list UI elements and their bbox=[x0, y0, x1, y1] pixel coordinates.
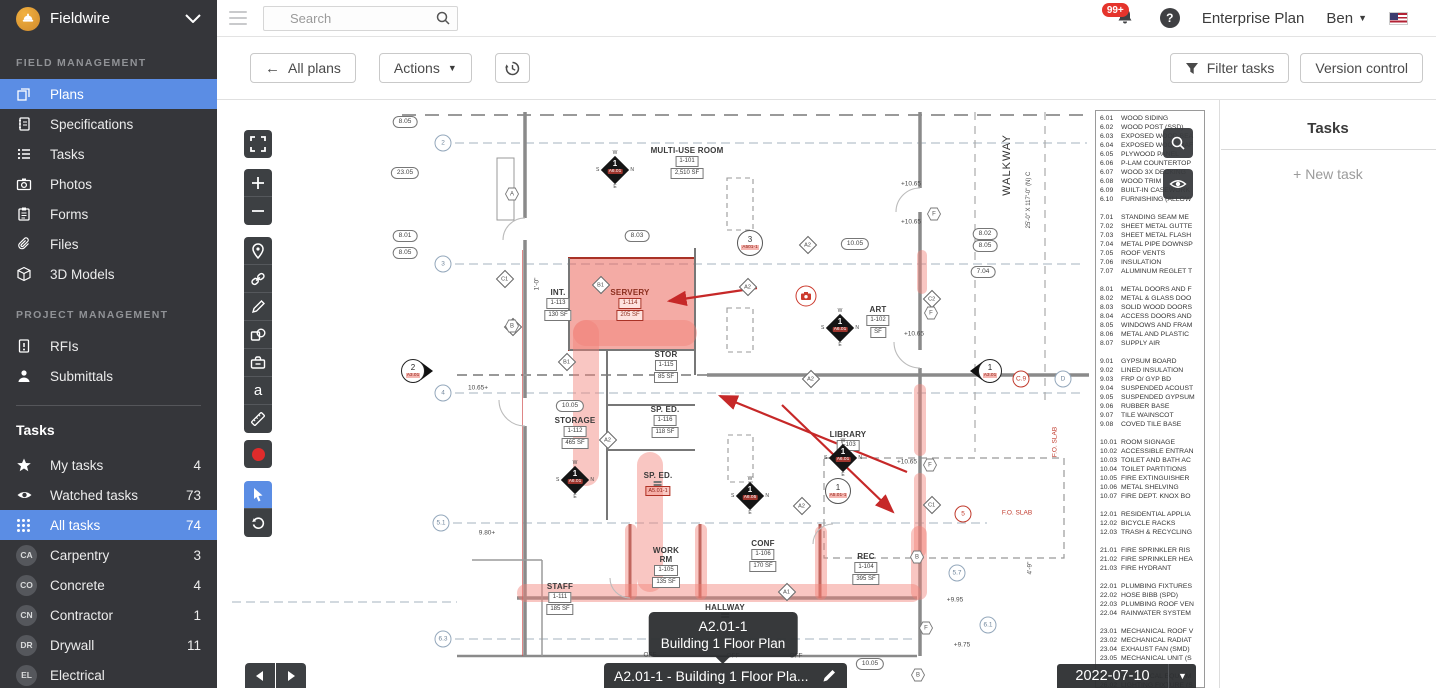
grid-bubble: 5.1 bbox=[433, 515, 450, 532]
shapes-icon bbox=[250, 327, 266, 343]
sidebar-item-label: Submittals bbox=[50, 369, 113, 384]
keynote-line: 8.03SOLID WOOD DOORS bbox=[1100, 303, 1204, 312]
task-category-item[interactable]: CN Contractor 1 bbox=[0, 600, 217, 630]
project-management-heading: PROJECT MANAGEMENT bbox=[0, 289, 217, 331]
task-filter-label: Watched tasks bbox=[50, 488, 138, 503]
sidebar-item[interactable]: Submittals bbox=[0, 361, 217, 391]
item-icon bbox=[16, 143, 40, 165]
keynote-line: 10.02ACCESSIBLE ENTRAN bbox=[1100, 447, 1204, 456]
keynote-line: 10.04TOILET PARTITIONS bbox=[1100, 465, 1204, 474]
plus-icon bbox=[251, 176, 265, 190]
keynote-line: 12.01RESIDENTIAL APPLIA bbox=[1100, 510, 1204, 519]
task-category-item[interactable]: CO Concrete 4 bbox=[0, 570, 217, 600]
task-category-count: 3 bbox=[193, 548, 201, 563]
keynote-line: 23.02MECHANICAL RADIAT bbox=[1100, 636, 1204, 645]
detail-marker: 3A501-1 bbox=[737, 230, 763, 256]
measure-tool-button[interactable] bbox=[244, 405, 272, 433]
task-category-count: 4 bbox=[193, 578, 201, 593]
keynote-bubble: 8.03 bbox=[625, 230, 650, 242]
new-task-button[interactable]: + New task bbox=[1220, 150, 1436, 182]
keynote-line: 12.02BICYCLE RACKS bbox=[1100, 519, 1204, 528]
tasks-heading: Tasks bbox=[0, 406, 217, 450]
keynote-line: 9.08COVED TILE BASE bbox=[1100, 420, 1204, 429]
item-icon bbox=[16, 113, 40, 135]
help-icon[interactable]: ? bbox=[1160, 8, 1180, 28]
room-label-group: REC 1-104 395 SF bbox=[852, 552, 879, 585]
category-badge: DR bbox=[16, 634, 40, 656]
item-icon bbox=[16, 263, 40, 285]
room-label-group: WORK RM 1-105 135 SF bbox=[648, 547, 684, 588]
task-category-item[interactable]: EL Electrical bbox=[0, 660, 217, 688]
search-input[interactable] bbox=[263, 6, 458, 31]
fieldwire-logo-icon bbox=[16, 7, 40, 31]
version-control-button[interactable]: Version control bbox=[1300, 53, 1423, 83]
grid-bubble: C.9 bbox=[1013, 371, 1030, 388]
keynote-bubble: 10.05 bbox=[856, 658, 884, 670]
task-category-label: Carpentry bbox=[50, 548, 109, 563]
rotate-icon bbox=[251, 516, 266, 531]
tasks-panel-title: Tasks bbox=[1220, 100, 1436, 149]
sidebar-item[interactable]: Tasks bbox=[0, 139, 217, 169]
dropdown-caret-icon: ▼ bbox=[448, 63, 457, 73]
task-filter-count: 4 bbox=[193, 458, 201, 473]
filter-tasks-button[interactable]: Filter tasks bbox=[1170, 53, 1290, 83]
keynote-line bbox=[1100, 276, 1204, 285]
item-icon bbox=[16, 83, 40, 105]
category-badge: CN bbox=[16, 604, 40, 626]
sidebar-item[interactable]: Specifications bbox=[0, 109, 217, 139]
item-icon bbox=[16, 454, 40, 476]
toolbox-button[interactable] bbox=[244, 349, 272, 377]
us-flag-icon[interactable] bbox=[1389, 12, 1408, 25]
category-badge: EL bbox=[16, 664, 40, 686]
keynote-line: 7.03SHEET METAL FLASH bbox=[1100, 231, 1204, 240]
version-date: 2022-07-10 bbox=[1057, 668, 1168, 684]
keynote-line: 9.03FRP O/ GYP BD bbox=[1100, 375, 1204, 384]
grid-bubble: 3 bbox=[435, 256, 452, 273]
hamburger-icon[interactable] bbox=[229, 11, 247, 25]
keynote-line: 7.06INSULATION bbox=[1100, 258, 1204, 267]
sidebar-item[interactable]: Files bbox=[0, 229, 217, 259]
keynote-line: 22.04RAINWATER SYSTEM bbox=[1100, 609, 1204, 618]
keynote-bubble: 8.05 bbox=[973, 240, 998, 252]
grid-bubble: 4 bbox=[435, 385, 452, 402]
minus-icon bbox=[251, 204, 265, 218]
keynote-line: 9.05SUSPENDED GYPSUM bbox=[1100, 393, 1204, 402]
grid-bubble: D bbox=[1055, 371, 1072, 388]
eye-icon bbox=[1169, 177, 1187, 191]
legend-visibility-button[interactable] bbox=[1163, 169, 1193, 199]
camera-icon bbox=[801, 292, 812, 301]
elevation-marker: WSNE 1 A6.01 bbox=[823, 311, 857, 345]
plan-text: +9.75 bbox=[954, 642, 970, 649]
room-label-group: STORAGE 1-112 465 SF bbox=[555, 416, 596, 449]
keynote-line: 12.03TRASH & RECYCLING bbox=[1100, 528, 1204, 537]
room-label-group: SERVERY 1-114 205 SF bbox=[610, 288, 649, 321]
keynote-bubble: 8.05 bbox=[393, 247, 418, 259]
zoom-out-button[interactable] bbox=[244, 197, 272, 225]
sidebar-item-label: Plans bbox=[50, 87, 84, 102]
keynote-line: 8.01METAL DOORS AND F bbox=[1100, 285, 1204, 294]
plan-text: F.O. SLAB bbox=[1002, 510, 1032, 517]
keynote-line: 7.04METAL PIPE DOWNSP bbox=[1100, 240, 1204, 249]
tooltip-sheet-number: A2.01-1 bbox=[661, 617, 786, 635]
elevation-marker: WSNE 1 A6.01 bbox=[598, 153, 632, 187]
plan-tools: a bbox=[244, 130, 272, 537]
keynote-line: 7.02SHEET METAL GUTTE bbox=[1100, 222, 1204, 231]
shapes-tool-button[interactable] bbox=[244, 321, 272, 349]
section-marker: 1A3.01 bbox=[975, 356, 1005, 386]
plan-toolbar: ←All plans Actions▼ Filter tasks Version… bbox=[217, 37, 1436, 100]
elevation-marker: WSNE 1 A6.01 bbox=[826, 441, 860, 475]
notifications-button[interactable]: 99+ bbox=[1116, 6, 1138, 30]
fieldwire-app: Fieldwire 99+ ? Enterprise Plan Ben▼ bbox=[0, 0, 1436, 688]
sidebar-item[interactable]: RFIs bbox=[0, 331, 217, 361]
pen-icon bbox=[251, 299, 266, 314]
keynote-line: 22.03PLUMBING ROOF VEN bbox=[1100, 600, 1204, 609]
select-tool-button[interactable] bbox=[244, 481, 272, 509]
top-bar-right: 99+ ? Enterprise Plan Ben▼ bbox=[217, 0, 1436, 37]
keynote-line: 7.01STANDING SEAM ME bbox=[1100, 213, 1204, 222]
keynote-line: 8.05WINDOWS AND FRAM bbox=[1100, 321, 1204, 330]
keynote-line: 6.06P-LAM COUNTERTOP bbox=[1100, 159, 1204, 168]
keynote-line: 21.03FIRE HYDRANT bbox=[1100, 564, 1204, 573]
elevation-marker: WSNE 1 A6.01 bbox=[558, 463, 592, 497]
pencil-icon bbox=[822, 668, 837, 683]
keynote-line: 22.02HOSE BIBB (SPD) bbox=[1100, 591, 1204, 600]
task-filter-label: My tasks bbox=[50, 458, 103, 473]
keynote-line: 10.05FIRE EXTINGUISHER bbox=[1100, 474, 1204, 483]
main-content: ←All plans Actions▼ Filter tasks Version… bbox=[217, 37, 1436, 688]
item-icon bbox=[16, 203, 40, 225]
keynote-line: 9.04SUSPENDED ACOUST bbox=[1100, 384, 1204, 393]
keynote-bubble: 8.01 bbox=[393, 230, 418, 242]
task-category-count: 1 bbox=[193, 608, 201, 623]
floor-plan-linework bbox=[217, 100, 1219, 688]
task-category-label: Contractor bbox=[50, 608, 113, 623]
keynote-line: 23.04EXHAUST FAN (SMD) bbox=[1100, 645, 1204, 654]
sidebar-item-label: Specifications bbox=[50, 117, 133, 132]
next-sheet-button[interactable] bbox=[276, 663, 306, 688]
room-label-group: CONF 1-106 170 SF bbox=[749, 539, 776, 572]
keynote-line: 10.03TOILET AND BATH AC bbox=[1100, 456, 1204, 465]
sheet-tooltip: A2.01-1 Building 1 Floor Plan bbox=[649, 612, 798, 657]
history-icon bbox=[504, 60, 521, 77]
plan-text: WALKWAY bbox=[1001, 134, 1013, 196]
keynote-line: 21.02FIRE SPRINKLER HEA bbox=[1100, 555, 1204, 564]
keynote-line: 8.07SUPPLY AIR bbox=[1100, 339, 1204, 348]
item-icon bbox=[16, 514, 40, 536]
sidebar-item-label: 3D Models bbox=[50, 267, 115, 282]
link-icon bbox=[250, 271, 266, 287]
keynote-line bbox=[1100, 537, 1204, 546]
sheet-nav bbox=[245, 663, 306, 688]
plan-canvas[interactable]: MULTI-USE ROOM 1-101 2,510 SF SERVERY 1-… bbox=[217, 100, 1219, 688]
user-menu[interactable]: Ben▼ bbox=[1326, 10, 1367, 27]
plan-text: +9.95 bbox=[947, 597, 963, 604]
zoom-in-button[interactable] bbox=[244, 169, 272, 197]
keynote-line: 8.04ACCESS DOORS AND bbox=[1100, 312, 1204, 321]
task-filter-count: 74 bbox=[186, 518, 201, 533]
plan-text: +10.65 bbox=[904, 331, 924, 338]
text-icon: a bbox=[254, 383, 262, 398]
ruler-icon bbox=[250, 411, 266, 427]
funnel-icon bbox=[1185, 62, 1199, 75]
pen-tool-button[interactable] bbox=[244, 293, 272, 321]
keynote-line bbox=[1100, 573, 1204, 582]
sidebar-item-label: Files bbox=[50, 237, 79, 252]
keynote-line: 10.07FIRE DEPT. KNOX BO bbox=[1100, 492, 1204, 501]
item-icon bbox=[16, 335, 40, 357]
previous-sheet-button[interactable] bbox=[245, 663, 275, 688]
keynote-line: 7.05ROOF VENTS bbox=[1100, 249, 1204, 258]
grid-bubble: 5 bbox=[955, 506, 972, 523]
plan-text: F.O. SLAB bbox=[1052, 427, 1059, 457]
brand-name: Fieldwire bbox=[50, 10, 110, 27]
plan-text: 1'-0" bbox=[534, 278, 541, 291]
keynote-line: 9.02LINED INSULATION bbox=[1100, 366, 1204, 375]
sidebar-item-label: Photos bbox=[50, 177, 92, 192]
task-filter-count: 73 bbox=[186, 488, 201, 503]
plan-text: 9.80+ bbox=[479, 530, 495, 537]
sidebar-item-label: RFIs bbox=[50, 339, 79, 354]
grid-bubble: 6.3 bbox=[435, 631, 452, 648]
right-arrow-icon bbox=[287, 671, 295, 681]
enterprise-plan-link[interactable]: Enterprise Plan bbox=[1202, 10, 1305, 27]
keynote-line: 7.07ALUMINUM REGLET T bbox=[1100, 267, 1204, 276]
back-arrow-icon: ← bbox=[265, 60, 280, 77]
plan-text: 4'-9" bbox=[1027, 562, 1034, 575]
detail-marker: 1A5.01-1 bbox=[825, 478, 851, 504]
plan-text: 10.65+ bbox=[468, 385, 488, 392]
keynote-line bbox=[1100, 348, 1204, 357]
chevron-down-icon bbox=[185, 14, 201, 23]
task-category-item[interactable]: DR Drywall 11 bbox=[0, 630, 217, 660]
keynote-bubble: 23.05 bbox=[391, 167, 419, 179]
grid-bubble: 5.7 bbox=[949, 565, 966, 582]
sidebar: FIELD MANAGEMENT bbox=[0, 37, 217, 688]
room-label-group: ART 1-102 SF bbox=[866, 305, 889, 338]
sidebar-item-label: Forms bbox=[50, 207, 88, 222]
keynote-line bbox=[1100, 429, 1204, 438]
item-icon bbox=[16, 365, 40, 387]
task-category-label: Electrical bbox=[50, 668, 105, 683]
plan-text: +10.65 bbox=[897, 459, 917, 466]
notification-badge: 99+ bbox=[1102, 3, 1129, 17]
toolbox-icon bbox=[250, 355, 266, 370]
keynote-bubble: 10.05 bbox=[556, 400, 584, 412]
keynote-bubble: 10.05 bbox=[841, 238, 869, 250]
keynote-line bbox=[1100, 501, 1204, 510]
sidebar-item[interactable]: Photos bbox=[0, 169, 217, 199]
task-category-count: 11 bbox=[187, 638, 201, 653]
item-icon bbox=[16, 233, 40, 255]
keynote-line bbox=[1100, 204, 1204, 213]
sheet-reference-tag: A5.01-1 bbox=[645, 486, 670, 496]
sidebar-item[interactable]: 3D Models bbox=[0, 259, 217, 289]
keynote-bubble: 8.05 bbox=[393, 116, 418, 128]
field-management-heading: FIELD MANAGEMENT bbox=[0, 37, 217, 79]
version-history-button[interactable] bbox=[495, 53, 530, 83]
actions-button[interactable]: Actions▼ bbox=[379, 53, 472, 83]
room-label-group: INT. 1-113 130 SF bbox=[544, 288, 571, 321]
keynote-bubble: 7.04 bbox=[971, 266, 996, 278]
chevron-down-icon: ▼ bbox=[1169, 671, 1196, 681]
pin-tool-button[interactable] bbox=[244, 237, 272, 265]
task-filter-item[interactable]: My tasks 4 bbox=[0, 450, 217, 480]
category-badge: CO bbox=[16, 574, 40, 596]
keynote-line: 9.07TILE WAINSCOT bbox=[1100, 411, 1204, 420]
task-filter-label: All tasks bbox=[50, 518, 100, 533]
magnifier-icon bbox=[1170, 135, 1186, 151]
keynote-line: 8.02METAL & GLASS DOO bbox=[1100, 294, 1204, 303]
left-arrow-icon bbox=[256, 671, 264, 681]
record-button[interactable] bbox=[244, 440, 272, 468]
link-tool-button[interactable] bbox=[244, 265, 272, 293]
version-date-dropdown[interactable]: 2022-07-10 ▼ bbox=[1057, 664, 1196, 688]
room-label-group: MULTI-USE ROOM 1-101 2,510 SF bbox=[651, 146, 724, 179]
brand-button[interactable]: Fieldwire bbox=[0, 0, 217, 37]
keynote-line bbox=[1100, 618, 1204, 627]
room-label-group: SP. ED. bbox=[644, 471, 673, 486]
plan-text: 25'-0" X 117'-0" (N) C bbox=[1026, 172, 1032, 229]
grid-bubble: 6.1 bbox=[980, 617, 997, 634]
section-marker: 2A3.01 bbox=[398, 356, 428, 386]
category-badge: CA bbox=[16, 544, 40, 566]
sidebar-item[interactable]: Forms bbox=[0, 199, 217, 229]
tasks-panel: Tasks + New task bbox=[1219, 100, 1436, 688]
legend-zoom-button[interactable] bbox=[1163, 128, 1193, 158]
item-icon bbox=[16, 173, 40, 195]
room-label-group: SP. ED. 1-116 118 SF bbox=[651, 405, 680, 438]
task-filter-item[interactable]: Watched tasks 73 bbox=[0, 480, 217, 510]
rotate-button[interactable] bbox=[244, 509, 272, 537]
chevron-down-icon: ▼ bbox=[1358, 13, 1367, 23]
text-tool-button[interactable]: a bbox=[244, 377, 272, 405]
keynote-line: 23.01MECHANICAL ROOF V bbox=[1100, 627, 1204, 636]
keynote-line: 9.06RUBBER BASE bbox=[1100, 402, 1204, 411]
plan-text: +10.65 bbox=[901, 181, 921, 188]
sidebar-item[interactable]: Plans bbox=[0, 79, 217, 109]
keynote-line: 10.01ROOM SIGNAGE bbox=[1100, 438, 1204, 447]
task-category-label: Drywall bbox=[50, 638, 94, 653]
record-icon bbox=[252, 448, 265, 461]
room-label-group: STAFF 1-111 185 SF bbox=[546, 582, 573, 615]
keynote-line: 21.01FIRE SPRINKLER RIS bbox=[1100, 546, 1204, 555]
photo-marker[interactable] bbox=[796, 286, 817, 307]
fullscreen-icon bbox=[250, 136, 266, 152]
keynote-line: 6.01WOOD SIDING bbox=[1100, 114, 1204, 123]
plan-text: +10.65 bbox=[901, 219, 921, 226]
item-icon bbox=[16, 484, 40, 506]
keynote-line: 9.01GYPSUM BOARD bbox=[1100, 357, 1204, 366]
task-category-label: Concrete bbox=[50, 578, 105, 593]
top-bar: Fieldwire 99+ ? Enterprise Plan Ben▼ bbox=[0, 0, 1436, 37]
sheet-name-button[interactable]: A2.01-1 - Building 1 Floor Pla... bbox=[604, 663, 847, 688]
keynote-line: 10.06METAL SHELVING bbox=[1100, 483, 1204, 492]
cursor-icon bbox=[251, 487, 265, 503]
keynote-line: 8.06METAL AND PLASTIC bbox=[1100, 330, 1204, 339]
room-label-group: STOR 1-115 85 SF bbox=[654, 350, 678, 383]
task-filter-item[interactable]: All tasks 74 bbox=[0, 510, 217, 540]
all-plans-button[interactable]: ←All plans bbox=[250, 53, 356, 83]
keynote-line: 23.05MECHANICAL UNIT (S bbox=[1100, 654, 1204, 663]
keynote-bubble: 8.02 bbox=[973, 228, 998, 240]
keynote-line: 22.01PLUMBING FIXTURES bbox=[1100, 582, 1204, 591]
fullscreen-button[interactable] bbox=[244, 130, 272, 158]
sidebar-item-label: Tasks bbox=[50, 147, 85, 162]
tooltip-sheet-title: Building 1 Floor Plan bbox=[661, 635, 786, 652]
search-icon bbox=[435, 10, 451, 31]
task-category-item[interactable]: CA Carpentry 3 bbox=[0, 540, 217, 570]
grid-bubble: 2 bbox=[435, 135, 452, 152]
pin-icon bbox=[251, 243, 265, 259]
elevation-marker: WSNE 1 A6.05 bbox=[733, 479, 767, 513]
